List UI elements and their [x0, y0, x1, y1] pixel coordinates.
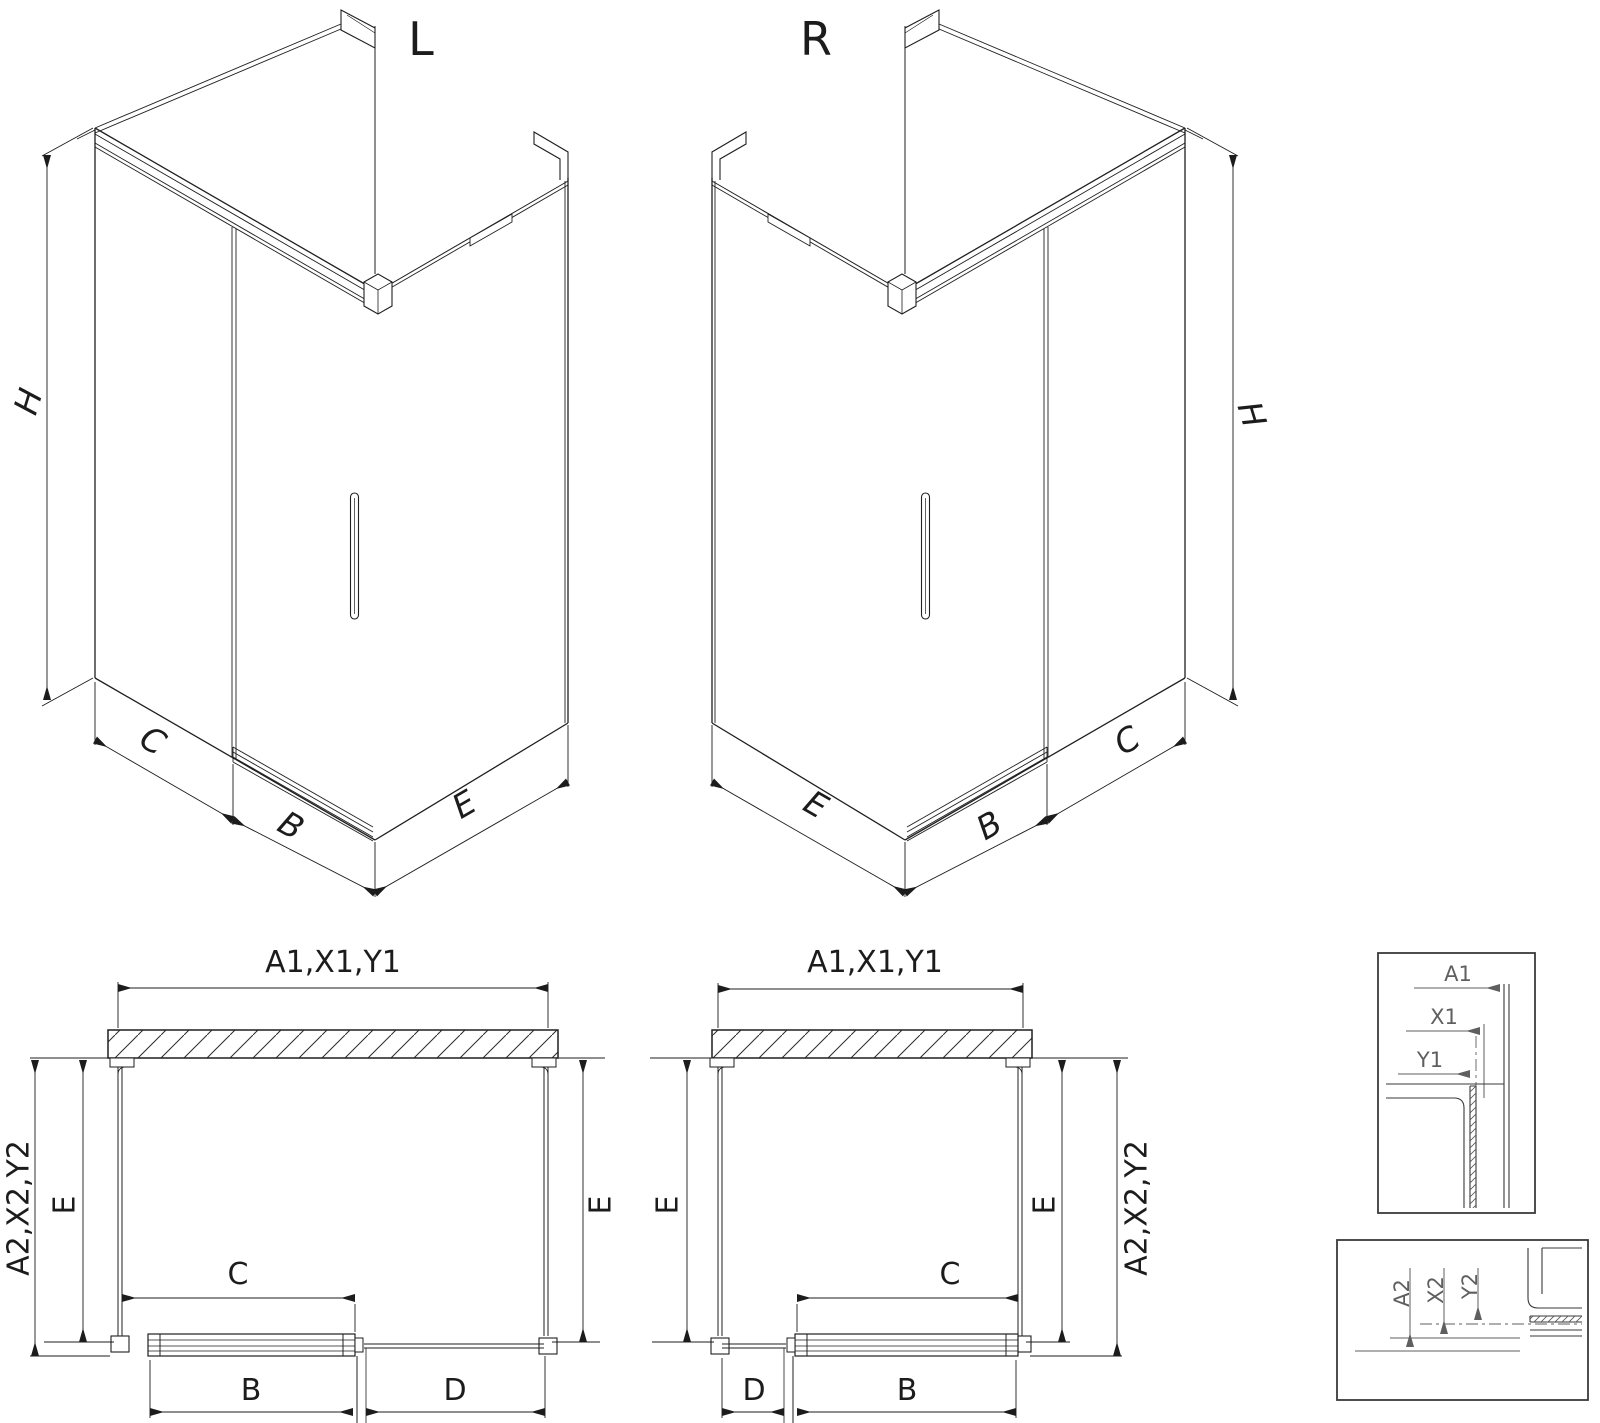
detail-bottom-dim-x: X2 [1424, 1276, 1448, 1304]
detail-top-dim-x: X1 [1430, 1005, 1458, 1029]
iso-right-dim-door: B [969, 803, 1008, 848]
shower-enclosure-drawing: L H C B E R H C B E [0, 0, 1600, 1423]
iso-left-title: L [408, 12, 434, 66]
door-track [148, 1334, 355, 1356]
detail-top-dim-y: Y1 [1416, 1048, 1443, 1072]
iso-left-dim-door: B [271, 803, 310, 848]
technical-drawing-sheet: L H C B E R H C B E [0, 0, 1600, 1423]
plan-left-dim-left-outer: A2,X2,Y2 [2, 1140, 37, 1276]
plan-left-dim-door: B [241, 1373, 262, 1408]
plan-right-dim-left-inner: E [651, 1196, 686, 1215]
iso-right-dim-height: H [1230, 397, 1275, 432]
plan-left-dim-opening: C [228, 1257, 249, 1292]
iso-left-dim-side: E [445, 782, 483, 826]
wall-section-hatched [712, 1030, 1032, 1058]
plan-right-dim-opening: C [940, 1257, 961, 1292]
plan-left-dim-panel: D [443, 1373, 466, 1408]
iso-left-dim-fixed: C [133, 718, 172, 763]
iso-view-left: L H C B E [6, 10, 568, 897]
plan-right-dim-door: B [897, 1373, 918, 1408]
wall-section-hatched [108, 1030, 558, 1058]
plan-left-dim-top: A1,X1,Y1 [265, 945, 401, 980]
door-track [795, 1334, 1018, 1356]
plan-right-dim-right-inner: E [1028, 1196, 1063, 1215]
plan-view-right: A1,X1,Y1 A2,X2,Y2 E E C B D [650, 945, 1155, 1423]
detail-box-top: A1 X1 Y1 [1378, 953, 1535, 1213]
plan-right-dim-panel: D [742, 1373, 765, 1408]
iso-left-dim-height: H [6, 384, 51, 419]
iso-right-title: R [800, 12, 832, 66]
plan-view-left: A1,X1,Y1 A2,X2,Y2 E E C B D [2, 945, 619, 1423]
plan-left-dim-right-inner: E [584, 1196, 619, 1215]
iso-right-dim-side: E [797, 782, 835, 826]
plan-right-dim-right-outer: A2,X2,Y2 [1120, 1140, 1155, 1276]
detail-box-bottom: A2 X2 Y2 [1337, 1240, 1588, 1400]
plan-left-dim-left-inner: E [48, 1196, 83, 1215]
plan-right-dim-top: A1,X1,Y1 [807, 945, 943, 980]
iso-view-right: R H C B E [712, 10, 1274, 897]
iso-right-dim-fixed: C [1107, 718, 1146, 763]
detail-bottom-dim-a: A2 [1390, 1279, 1414, 1307]
detail-bottom-dim-y: Y2 [1458, 1273, 1482, 1300]
detail-top-dim-a: A1 [1444, 962, 1472, 986]
